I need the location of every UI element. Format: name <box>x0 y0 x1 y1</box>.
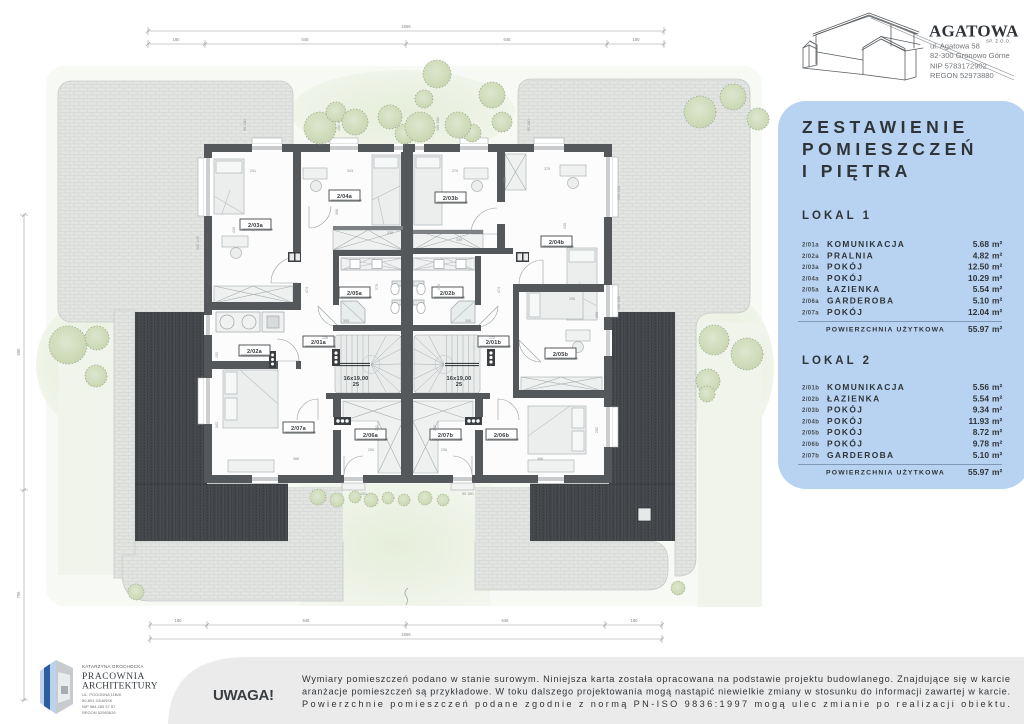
svg-text:2/04b: 2/04b <box>802 419 819 425</box>
svg-text:306: 306 <box>335 209 339 215</box>
svg-text:648: 648 <box>502 618 510 623</box>
svg-text:25: 25 <box>456 382 463 388</box>
svg-text:5.68: 5.68 <box>973 239 990 249</box>
svg-text:80-801 GDAŃSK: 80-801 GDAŃSK <box>82 698 113 703</box>
svg-text:12.04: 12.04 <box>968 307 989 317</box>
svg-text:1656: 1656 <box>401 632 411 637</box>
svg-text:2/05b: 2/05b <box>553 352 569 358</box>
svg-text:5.56: 5.56 <box>973 382 990 392</box>
svg-text:m²: m² <box>992 324 1002 334</box>
svg-text:100 180: 100 180 <box>436 117 440 131</box>
svg-text:LOKAL 2: LOKAL 2 <box>802 355 872 367</box>
svg-text:2/07a: 2/07a <box>291 426 307 432</box>
svg-text:342: 342 <box>215 422 219 428</box>
svg-text:UL. POGODNA 11B/8: UL. POGODNA 11B/8 <box>82 692 122 697</box>
svg-text:m²: m² <box>992 382 1002 392</box>
svg-text:756: 756 <box>16 591 21 599</box>
svg-text:POKÓJ: POKÓJ <box>827 438 863 449</box>
svg-text:2/05a: 2/05a <box>347 291 363 297</box>
svg-text:2/02b: 2/02b <box>440 291 456 297</box>
svg-text:m²: m² <box>992 450 1002 460</box>
svg-text:180: 180 <box>173 37 181 42</box>
svg-text:POKÓJ: POKÓJ <box>827 261 863 272</box>
svg-text:GARDEROBA: GARDEROBA <box>827 450 895 460</box>
svg-text:POKÓJ: POKÓJ <box>827 404 863 415</box>
svg-text:375: 375 <box>544 167 550 171</box>
svg-text:55.97: 55.97 <box>968 467 989 477</box>
svg-text:POMIESZCZEŃ: POMIESZCZEŃ <box>802 138 978 159</box>
svg-text:ŁAZIENKA: ŁAZIENKA <box>827 393 881 403</box>
svg-text:55.97: 55.97 <box>968 324 989 334</box>
svg-text:m²: m² <box>992 296 1002 306</box>
svg-text:4.82: 4.82 <box>973 250 990 260</box>
svg-text:192: 192 <box>215 352 219 358</box>
svg-text:251: 251 <box>250 169 256 173</box>
svg-text:PRACOWNIA: PRACOWNIA <box>82 672 145 682</box>
svg-text:1656: 1656 <box>401 24 411 29</box>
svg-text:KOMUNIKACJA: KOMUNIKACJA <box>827 382 905 392</box>
svg-text:I PIĘTRA: I PIĘTRA <box>802 161 912 181</box>
svg-text:648: 648 <box>303 618 311 623</box>
svg-text:5.10: 5.10 <box>973 450 990 460</box>
svg-text:430: 430 <box>563 223 567 229</box>
svg-text:440: 440 <box>232 227 236 233</box>
svg-text:2/02a: 2/02a <box>247 349 263 355</box>
svg-text:339: 339 <box>456 238 462 242</box>
svg-text:POWIERZCHNIA UŻYTKOWA: POWIERZCHNIA UŻYTKOWA <box>826 326 945 334</box>
svg-text:m²: m² <box>992 273 1002 283</box>
svg-text:ul. Agatowa 58: ul. Agatowa 58 <box>930 42 980 51</box>
svg-text:5.54: 5.54 <box>973 393 990 403</box>
svg-text:200 105: 200 105 <box>196 236 200 250</box>
svg-text:200 105: 200 105 <box>617 186 621 200</box>
svg-text:REGON 52973880: REGON 52973880 <box>930 71 994 80</box>
svg-text:2/01b: 2/01b <box>486 340 502 346</box>
svg-text:m²: m² <box>992 262 1002 272</box>
svg-text:648: 648 <box>302 37 310 42</box>
svg-text:9.78: 9.78 <box>973 439 990 449</box>
svg-text:474: 474 <box>305 287 309 293</box>
svg-text:KATARZYNA GROCHOCKA: KATARZYNA GROCHOCKA <box>82 664 145 669</box>
svg-text:2/01b: 2/01b <box>802 386 819 392</box>
svg-text:NIP 5783172902: NIP 5783172902 <box>930 62 987 71</box>
svg-text:ZESTAWIENIE: ZESTAWIENIE <box>802 117 969 137</box>
svg-text:GARDEROBA: GARDEROBA <box>827 296 895 306</box>
svg-text:180: 180 <box>631 618 639 623</box>
svg-text:343: 343 <box>347 169 353 173</box>
svg-text:LOKAL 1: LOKAL 1 <box>802 210 872 222</box>
svg-text:2/04b: 2/04b <box>549 240 565 246</box>
svg-text:90 180: 90 180 <box>243 119 247 131</box>
svg-text:8.72: 8.72 <box>973 427 990 437</box>
svg-text:180: 180 <box>175 618 183 623</box>
svg-text:2/02b: 2/02b <box>802 397 819 403</box>
svg-text:2/07b: 2/07b <box>802 453 819 459</box>
svg-text:2/06b: 2/06b <box>802 442 819 448</box>
svg-text:388: 388 <box>537 457 543 461</box>
svg-text:KOMUNIKACJA: KOMUNIKACJA <box>827 239 905 249</box>
svg-text:474: 474 <box>497 287 501 293</box>
svg-text:Wymiary pomieszczeń podano w s: Wymiary pomieszczeń podano w stanie suro… <box>302 674 1010 684</box>
svg-text:25: 25 <box>353 382 360 388</box>
svg-text:180: 180 <box>633 37 641 42</box>
svg-text:395: 395 <box>343 319 349 323</box>
svg-text:2/06b: 2/06b <box>494 433 510 439</box>
svg-text:POKÓJ: POKÓJ <box>827 426 863 437</box>
svg-text:12.50: 12.50 <box>968 262 989 272</box>
svg-text:252: 252 <box>375 425 379 431</box>
svg-text:270: 270 <box>375 284 379 290</box>
svg-text:126: 126 <box>322 336 328 340</box>
svg-text:206: 206 <box>441 448 447 452</box>
svg-text:648: 648 <box>504 37 512 42</box>
svg-text:2/01a: 2/01a <box>311 340 327 346</box>
svg-text:395: 395 <box>465 319 471 323</box>
svg-text:5.10: 5.10 <box>973 296 990 306</box>
svg-text:NIP 584 285 37 57: NIP 584 285 37 57 <box>82 704 116 709</box>
svg-text:m²: m² <box>992 427 1002 437</box>
svg-text:POKÓJ: POKÓJ <box>827 415 863 426</box>
svg-text:2/01a: 2/01a <box>802 243 819 249</box>
svg-text:m²: m² <box>992 284 1002 294</box>
svg-text:ARCHITEKTURY: ARCHITEKTURY <box>82 682 158 692</box>
svg-text:REGON 52983626: REGON 52983626 <box>82 710 116 715</box>
svg-text:252: 252 <box>433 425 437 431</box>
svg-text:m²: m² <box>992 405 1002 415</box>
svg-text:90 180: 90 180 <box>527 119 531 131</box>
svg-text:2/03b: 2/03b <box>443 196 459 202</box>
svg-text:2/07a: 2/07a <box>802 310 819 316</box>
svg-text:2/03a: 2/03a <box>802 265 819 271</box>
svg-text:m²: m² <box>992 250 1002 260</box>
svg-text:2/04a: 2/04a <box>802 276 819 282</box>
svg-text:ŁAZIENKA: ŁAZIENKA <box>827 284 881 294</box>
svg-text:m²: m² <box>992 239 1002 249</box>
svg-text:PRALNIA: PRALNIA <box>827 250 874 260</box>
svg-text:306: 306 <box>503 177 507 183</box>
svg-text:2/02a: 2/02a <box>802 254 819 260</box>
svg-text:339: 339 <box>387 231 393 235</box>
svg-text:m²: m² <box>992 439 1002 449</box>
svg-text:255: 255 <box>569 297 575 301</box>
svg-text:270: 270 <box>437 284 441 290</box>
svg-text:388: 388 <box>293 457 299 461</box>
svg-text:2/07b: 2/07b <box>438 433 454 439</box>
svg-text:POKÓJ: POKÓJ <box>827 306 863 317</box>
svg-text:11.93: 11.93 <box>969 416 990 426</box>
svg-text:POWIERZCHNIA UŻYTKOWA: POWIERZCHNIA UŻYTKOWA <box>826 469 945 477</box>
svg-text:UWAGA!: UWAGA! <box>213 687 274 704</box>
svg-text:279: 279 <box>452 169 458 173</box>
svg-text:252: 252 <box>595 427 599 433</box>
svg-text:140 105: 140 105 <box>617 296 621 310</box>
svg-text:90 180: 90 180 <box>462 492 474 496</box>
svg-text:690: 690 <box>16 348 21 356</box>
svg-text:2/05b: 2/05b <box>802 431 819 437</box>
svg-text:2/05a: 2/05a <box>802 288 819 294</box>
svg-text:2/06a: 2/06a <box>363 433 379 439</box>
svg-text:2/03b: 2/03b <box>802 408 819 414</box>
svg-text:306: 306 <box>595 312 599 318</box>
svg-text:aranżacje pomieszczeń są przyk: aranżacje pomieszczeń są przykładowe. W … <box>302 687 1010 697</box>
svg-text:m²: m² <box>992 393 1002 403</box>
svg-text:2/06a: 2/06a <box>802 299 819 305</box>
svg-text:m²: m² <box>992 467 1002 477</box>
svg-text:5.54: 5.54 <box>973 284 990 294</box>
svg-text:m²: m² <box>992 307 1002 317</box>
svg-text:POKÓJ: POKÓJ <box>827 272 863 283</box>
svg-text:122: 122 <box>489 336 495 340</box>
svg-text:Powierzchnie pomieszczeń pod: Powierzchnie pomieszczeń podane zgodnie … <box>302 699 1010 709</box>
svg-text:82-300 Gronowo Górne: 82-300 Gronowo Górne <box>930 51 1010 60</box>
svg-text:2/04a: 2/04a <box>337 194 353 200</box>
svg-text:9.34: 9.34 <box>973 405 990 415</box>
svg-text:206: 206 <box>368 448 374 452</box>
svg-text:10.29: 10.29 <box>968 273 989 283</box>
svg-text:2/03a: 2/03a <box>248 223 264 229</box>
svg-text:SP. Z O.O.: SP. Z O.O. <box>986 39 1011 44</box>
svg-text:m²: m² <box>992 416 1002 426</box>
